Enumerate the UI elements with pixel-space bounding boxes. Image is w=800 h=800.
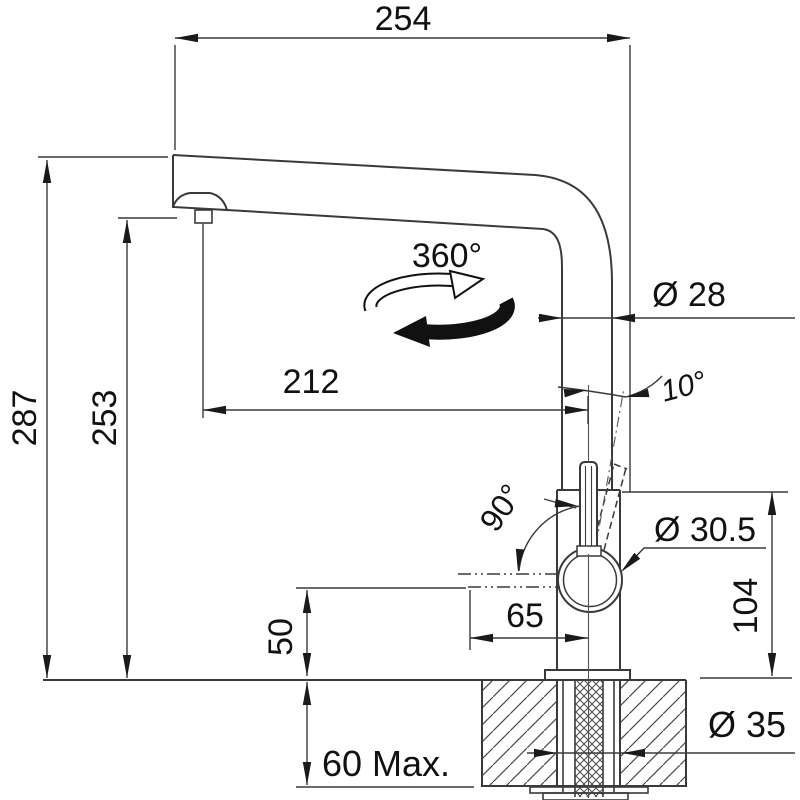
dimension-lines xyxy=(38,38,795,787)
drawing-canvas: 254 287 253 212 360° Ø 28 10° 90° Ø 30.5… xyxy=(0,0,800,800)
swivel-arrow-outline xyxy=(450,271,483,298)
label-pipe-diameter: Ø 28 xyxy=(652,276,726,314)
label-lever-swing-angle: 90° xyxy=(472,478,529,538)
dimension-labels: 254 287 253 212 360° Ø 28 10° 90° Ø 30.5… xyxy=(6,0,786,784)
base-flange xyxy=(545,670,630,680)
label-spout-reach: 212 xyxy=(283,363,340,401)
lever-folded-position xyxy=(458,574,560,587)
counter-hatch-right xyxy=(620,680,686,786)
spout-bottom-edge xyxy=(227,210,562,490)
lever-upright xyxy=(580,462,597,554)
label-spout-height: 253 xyxy=(86,390,124,447)
dim-253-line xyxy=(118,218,177,678)
label-deck-thickness: 60 Max. xyxy=(322,743,450,784)
swivel-arrow-black xyxy=(393,316,430,347)
handle-ball-outer xyxy=(558,548,622,612)
dim-212-line xyxy=(203,224,588,424)
label-body-height: 104 xyxy=(727,578,765,635)
spout-top-edge xyxy=(173,155,612,490)
label-swivel-angle: 360° xyxy=(412,237,482,275)
label-total-width: 254 xyxy=(375,0,432,38)
swivel-360-symbol xyxy=(370,271,507,347)
aerator-dome xyxy=(173,193,227,210)
faucet-technical-drawing: 254 287 253 212 360° Ø 28 10° 90° Ø 30.5… xyxy=(0,0,800,800)
dim-50-line xyxy=(296,588,466,676)
counter-hatch-left xyxy=(482,680,557,786)
label-lever-reach: 65 xyxy=(506,597,544,635)
label-handle-diameter: Ø 30.5 xyxy=(654,511,756,549)
aerator-tip xyxy=(195,210,212,223)
label-hole-diameter: Ø 35 xyxy=(708,704,786,745)
label-total-height: 287 xyxy=(6,390,44,447)
dim-d305-leader xyxy=(623,548,766,570)
faucet-body xyxy=(173,155,630,680)
label-lever-tilt-angle: 10° xyxy=(657,365,709,409)
label-lever-clearance: 50 xyxy=(262,618,300,656)
